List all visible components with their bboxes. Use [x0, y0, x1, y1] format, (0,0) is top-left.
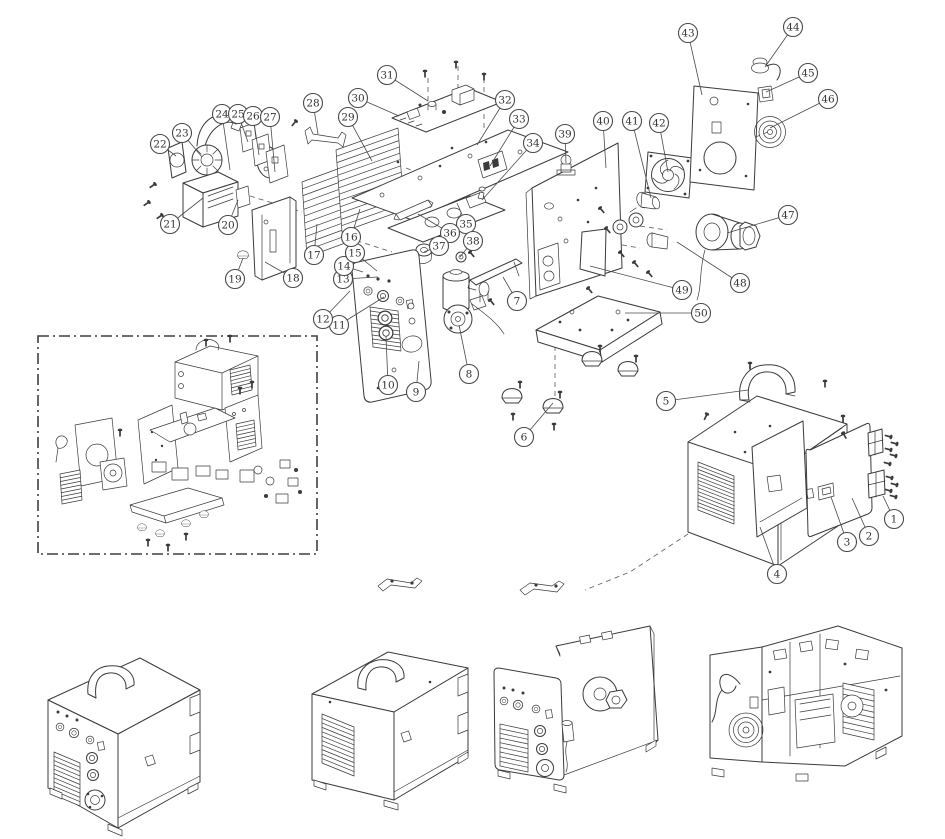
callout-45: 45: [799, 64, 818, 83]
callout-number-7: 7: [514, 296, 521, 308]
assembled-view-side: [312, 652, 468, 810]
callout-46: 46: [819, 90, 838, 109]
callout-number-38: 38: [466, 236, 479, 248]
screw: [228, 335, 233, 343]
screw: [423, 70, 428, 78]
assembled-view-front: [48, 658, 200, 836]
screw: [585, 285, 594, 294]
callout-number-16: 16: [344, 232, 358, 244]
callout-10: 10: [379, 376, 398, 395]
callout-number-18: 18: [286, 273, 299, 285]
exploded-parts-diagram-page: 1234567891011121314151617181920212223242…: [0, 0, 945, 839]
screw: [890, 440, 899, 446]
callout-27: 27: [261, 108, 280, 127]
screw: [146, 539, 151, 547]
callout-20: 20: [219, 216, 238, 235]
callout-number-20: 20: [221, 220, 234, 232]
callout-number-19: 19: [228, 274, 241, 286]
callout-44: 44: [784, 18, 803, 37]
callout-number-4: 4: [774, 569, 781, 581]
rubber-feet: [502, 352, 638, 414]
callout-7: 7: [508, 292, 527, 311]
callout-number-37: 37: [432, 241, 445, 253]
inset-overview: [38, 335, 317, 554]
callout-21: 21: [161, 215, 180, 234]
loose-brackets: [378, 578, 564, 595]
callout-number-46: 46: [821, 94, 835, 106]
callout-number-1: 1: [891, 514, 898, 526]
callout-number-30: 30: [351, 93, 364, 105]
callout-22: 22: [151, 135, 170, 154]
mid-chassis-panel: [526, 143, 622, 299]
screw: [290, 118, 299, 127]
callout-number-40: 40: [596, 116, 609, 128]
callout-leader-5: [666, 390, 748, 401]
callout-number-29: 29: [341, 112, 354, 124]
handle: [740, 365, 795, 402]
callout-number-15: 15: [348, 248, 361, 260]
callout-number-34: 34: [526, 138, 540, 150]
callout-16: 16: [342, 228, 361, 247]
screw: [634, 355, 639, 363]
callout-number-49: 49: [675, 285, 688, 297]
callout-number-11: 11: [332, 320, 345, 332]
screw: [487, 297, 496, 306]
callout-42: 42: [650, 114, 669, 133]
screw: [142, 199, 151, 207]
rear-panel: [690, 58, 786, 190]
screw: [552, 423, 557, 431]
screw: [883, 460, 892, 466]
screw: [166, 544, 171, 552]
callout-number-32: 32: [498, 95, 511, 107]
callout-number-42: 42: [652, 118, 665, 130]
screw: [645, 269, 654, 278]
callout-number-17: 17: [307, 250, 320, 262]
callout-8: 8: [460, 365, 479, 384]
callout-43: 43: [679, 24, 698, 43]
exploded-assembly: [142, 58, 899, 595]
cable-clamp: [305, 127, 346, 147]
callout-31: 31: [378, 66, 397, 85]
screw: [511, 413, 516, 421]
callout-28: 28: [304, 94, 323, 113]
screw: [631, 259, 640, 268]
screw: [518, 381, 523, 389]
callout-number-45: 45: [801, 68, 814, 80]
callout-50: 50: [692, 304, 711, 323]
callout-number-36: 36: [443, 228, 457, 240]
callout-number-23: 23: [175, 128, 188, 140]
callout-12: 12: [314, 310, 333, 329]
callout-number-24: 24: [215, 109, 229, 121]
screw: [841, 415, 846, 423]
screw: [890, 481, 899, 487]
callout-49: 49: [673, 281, 692, 300]
callout-9: 9: [407, 383, 426, 402]
screw: [823, 380, 828, 388]
assembled-view-open-side: [494, 626, 658, 793]
power-switch: [758, 86, 773, 102]
callout-17: 17: [305, 246, 324, 265]
callout-41: 41: [623, 112, 642, 131]
callout-number-47: 47: [781, 210, 794, 222]
callout-39: 39: [556, 125, 575, 144]
cable-gland: [752, 58, 781, 80]
callout-number-44: 44: [786, 22, 800, 34]
callout-1: 1: [885, 510, 904, 529]
callout-number-3: 3: [844, 537, 851, 549]
callout-number-2: 2: [866, 531, 873, 543]
callout-number-50: 50: [694, 308, 707, 320]
callout-number-33: 33: [512, 114, 525, 126]
screw: [885, 474, 894, 480]
callout-number-9: 9: [413, 387, 420, 399]
screw: [702, 412, 710, 421]
callout-number-31: 31: [380, 70, 393, 82]
fan-guard: [755, 117, 786, 148]
callout-38: 38: [464, 232, 483, 251]
callout-23: 23: [173, 124, 192, 143]
callout-number-48: 48: [733, 278, 746, 290]
callout-number-6: 6: [521, 432, 528, 444]
screw: [118, 429, 123, 437]
diagram-canvas: 1234567891011121314151617181920212223242…: [0, 0, 945, 839]
callout-37: 37: [430, 237, 449, 256]
callout-19: 19: [226, 270, 245, 289]
base-plate: [536, 296, 662, 362]
callout-48: 48: [731, 274, 750, 293]
callout-33: 33: [510, 110, 529, 129]
screw: [148, 181, 157, 189]
callout-40: 40: [594, 112, 613, 131]
callout-29: 29: [339, 108, 358, 127]
callout-number-25: 25: [231, 109, 244, 121]
callout-number-5: 5: [663, 396, 670, 408]
callout-47: 47: [779, 206, 798, 225]
callout-30: 30: [349, 89, 368, 108]
callout-3: 3: [838, 533, 857, 552]
callout-number-22: 22: [153, 139, 166, 151]
callout-5: 5: [657, 392, 676, 411]
callout-number-10: 10: [381, 380, 394, 392]
screw: [884, 487, 893, 493]
callout-6: 6: [515, 428, 534, 447]
callout-number-26: 26: [246, 111, 260, 123]
screw: [558, 391, 563, 399]
transformer: [183, 172, 250, 227]
callout-number-12: 12: [316, 314, 329, 326]
internal-fan: [645, 152, 692, 198]
screw: [184, 533, 189, 541]
assembled-view-rear-open: [710, 626, 902, 781]
callout-number-14: 14: [337, 261, 351, 273]
screw: [204, 339, 209, 347]
callout-18: 18: [284, 269, 303, 288]
callout-2: 2: [860, 527, 879, 546]
callout-number-39: 39: [558, 129, 571, 141]
callout-leader-49: [590, 266, 682, 290]
callout-number-21: 21: [163, 219, 176, 231]
mount-bracket-panel: [238, 197, 297, 280]
callout-number-27: 27: [263, 112, 276, 124]
control-pcb: [392, 85, 502, 132]
screw: [482, 73, 487, 81]
screw: [889, 493, 898, 499]
screw: [748, 362, 753, 370]
screw: [889, 452, 898, 458]
callout-32: 32: [496, 91, 515, 110]
callout-number-28: 28: [306, 98, 319, 110]
callout-4: 4: [768, 565, 787, 584]
screw: [884, 433, 893, 439]
screw: [884, 446, 893, 452]
callout-34: 34: [524, 134, 543, 153]
callout-number-35: 35: [459, 219, 472, 231]
callout-number-41: 41: [625, 116, 638, 128]
callout-number-43: 43: [681, 28, 694, 40]
callout-number-8: 8: [466, 369, 473, 381]
callout-26: 26: [244, 107, 263, 126]
